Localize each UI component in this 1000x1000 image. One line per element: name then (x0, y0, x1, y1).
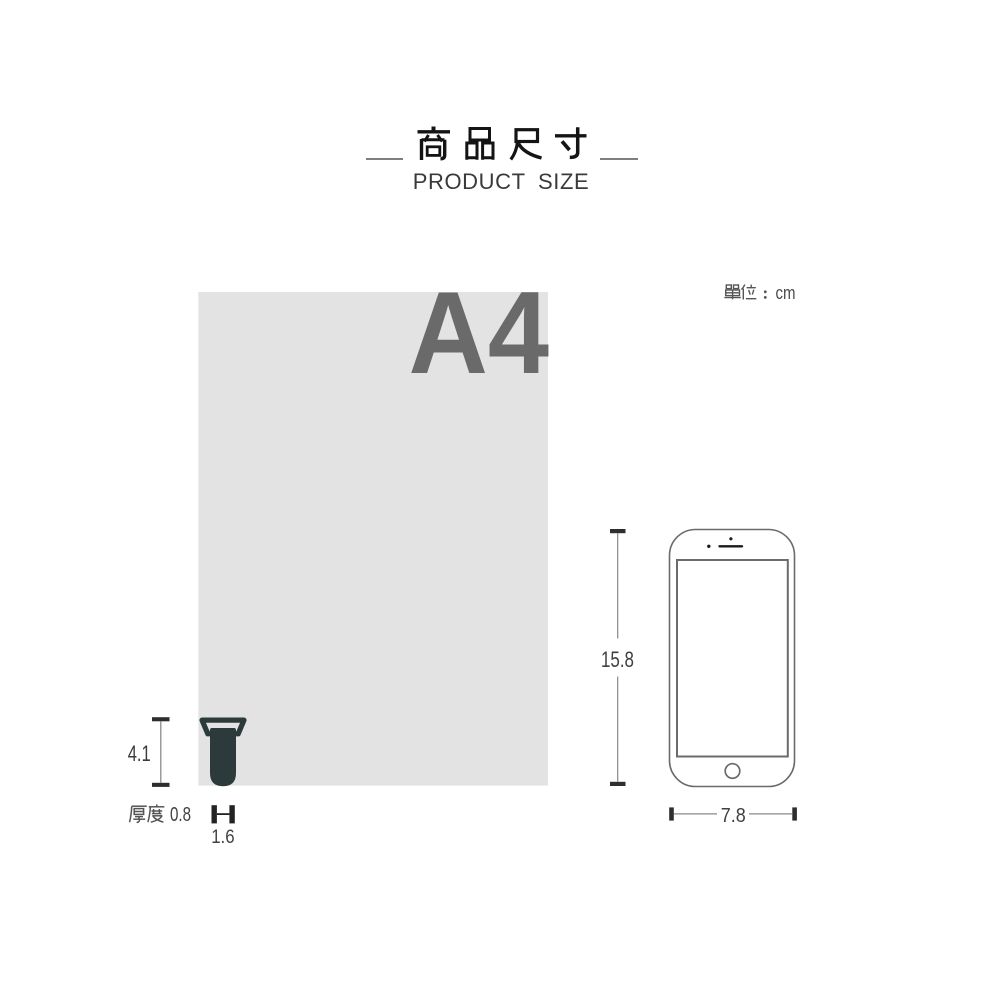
svg-text:7.8: 7.8 (721, 804, 746, 827)
svg-text:0.8: 0.8 (170, 803, 191, 826)
svg-text:cm: cm (776, 283, 796, 303)
svg-text:A4: A4 (409, 267, 550, 398)
svg-text:4.1: 4.1 (128, 741, 151, 766)
svg-text:15.8: 15.8 (601, 647, 634, 672)
svg-text:PRODUCT SIZE: PRODUCT SIZE (413, 169, 590, 194)
svg-text:1.6: 1.6 (211, 826, 234, 848)
